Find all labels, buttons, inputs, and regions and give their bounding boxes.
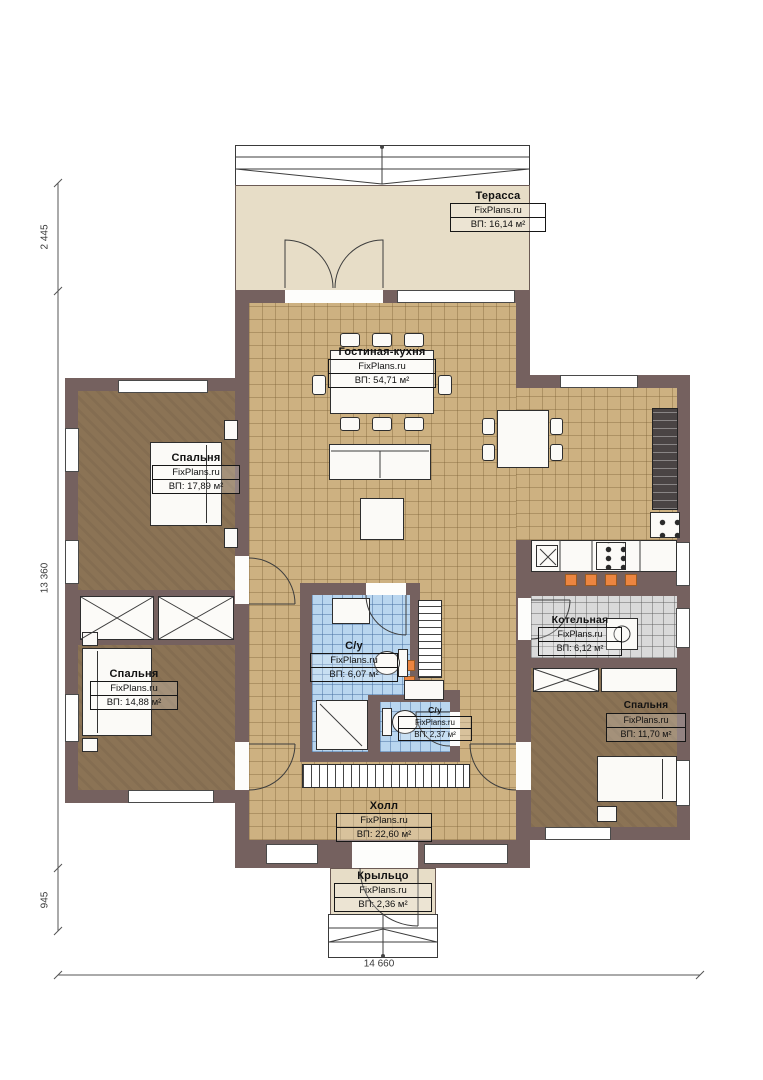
stove: [596, 542, 626, 570]
kitchen-chair: [550, 444, 563, 461]
room-label-hall: Холл FixPlans.ru ВП: 22,60 м²: [336, 800, 432, 842]
room-label-bathroom2: С/у FixPlans.ru ВП: 2,37 м²: [398, 706, 472, 741]
room-area: ВП: 54,71 м²: [329, 374, 435, 387]
kitchen-chair: [482, 444, 495, 461]
brand-text: FixPlans.ru: [607, 714, 685, 728]
toilet-tank: [382, 708, 392, 736]
brand-text: FixPlans.ru: [311, 654, 397, 668]
room-area: ВП: 6,07 м²: [311, 668, 397, 681]
brand-text: FixPlans.ru: [329, 360, 435, 374]
window-hall-bottom-right: [424, 844, 508, 864]
room-info-box: FixPlans.ru ВП: 2,37 м²: [398, 716, 472, 741]
dining-chair: [372, 333, 392, 347]
room-area: ВП: 14,88 м²: [91, 696, 177, 709]
room-info-box: FixPlans.ru ВП: 2,36 м²: [334, 883, 432, 912]
room-name: Гостиная-кухня: [328, 346, 436, 358]
room-label-bedroom1: Спальня FixPlans.ru ВП: 17,89 м²: [152, 452, 240, 494]
hanger-wardrobe: [302, 764, 470, 788]
nightstand: [224, 420, 238, 440]
room-area: ВП: 16,14 м²: [451, 218, 545, 231]
room-info-box: FixPlans.ru ВП: 6,12 м²: [538, 627, 622, 656]
window-bedroom2-bottom: [128, 790, 214, 803]
room-name: Спальня: [90, 668, 178, 680]
room-area: ВП: 2,36 м²: [335, 898, 431, 911]
room-name: С/у: [398, 706, 472, 715]
vent-marker: [625, 574, 637, 586]
kitchen-chair: [550, 418, 563, 435]
bedroom3-door-opening: [516, 742, 531, 790]
vent-marker: [585, 574, 597, 586]
window-bedroom2-left: [65, 694, 79, 742]
room-label-bathroom1: С/у FixPlans.ru ВП: 6,07 м²: [310, 640, 398, 682]
room-info-box: FixPlans.ru ВП: 11,70 м²: [606, 713, 686, 742]
terrace-door-opening: [285, 290, 383, 303]
brand-text: FixPlans.ru: [91, 682, 177, 696]
room-name: Спальня: [152, 452, 240, 464]
room-name: Крыльцо: [334, 870, 432, 882]
porch-door-opening: [352, 842, 418, 868]
room-area: ВП: 6,12 м²: [539, 642, 621, 655]
dining-chair: [372, 417, 392, 431]
kitchen-sink: [536, 545, 558, 567]
dimension-porch-depth: 945: [40, 892, 51, 909]
window-bedroom1-top: [118, 380, 208, 393]
nightstand: [597, 806, 617, 822]
room-label-bedroom3: Спальня FixPlans.ru ВП: 11,70 м²: [606, 700, 686, 742]
window-kitchen-right: [676, 542, 690, 586]
room-name: Котельная: [538, 614, 622, 626]
bathroom1-door-opening: [366, 583, 406, 595]
room-info-box: FixPlans.ru ВП: 54,71 м²: [328, 359, 436, 388]
window-kitchen-top: [560, 375, 638, 388]
tall-cabinet: [652, 408, 678, 510]
dining-chair: [438, 375, 452, 395]
dimension-house-width: 14 660: [364, 959, 395, 970]
dining-chair: [404, 333, 424, 347]
window-bedroom1-left: [65, 428, 79, 472]
room-info-box: FixPlans.ru ВП: 17,89 м²: [152, 465, 240, 494]
window-living-top: [397, 290, 515, 303]
window-bedroom3-right: [676, 760, 690, 806]
dining-chair: [340, 417, 360, 431]
room-label-boiler: Котельная FixPlans.ru ВП: 6,12 м²: [538, 614, 622, 656]
bed-bedroom3: [597, 756, 677, 802]
sofa: [329, 444, 431, 480]
dimension-house-height: 13 360: [40, 563, 51, 594]
window-boiler-right: [676, 608, 690, 648]
room-area: ВП: 11,70 м²: [607, 728, 685, 741]
wardrobe: [158, 596, 234, 640]
terrace-roof-canopy: [235, 145, 530, 186]
window-bedroom3-bottom: [545, 827, 611, 840]
porch-roof-canopy: [328, 914, 438, 958]
room-area: ВП: 22,60 м²: [337, 828, 431, 841]
brand-text: FixPlans.ru: [337, 814, 431, 828]
nightstand: [224, 528, 238, 548]
dining-chair: [312, 375, 326, 395]
wardrobe: [533, 668, 599, 692]
sink: [332, 598, 370, 624]
brand-text: FixPlans.ru: [399, 717, 471, 729]
vent-marker: [565, 574, 577, 586]
shower: [316, 700, 368, 750]
nightstand: [82, 738, 98, 752]
room-area: ВП: 2,37 м²: [399, 729, 471, 740]
room-info-box: FixPlans.ru ВП: 16,14 м²: [450, 203, 546, 232]
cupboard: [601, 668, 677, 692]
vent-marker: [605, 574, 617, 586]
hanger-wardrobe: [418, 600, 442, 678]
fridge: [650, 512, 680, 538]
bed-pillow-line: [662, 759, 674, 799]
sink: [404, 680, 444, 700]
bedroom1-door-opening: [235, 556, 249, 604]
coffee-table: [360, 498, 404, 540]
room-name: Спальня: [606, 700, 686, 712]
dining-chair: [340, 333, 360, 347]
boiler-door-opening: [518, 598, 531, 640]
bedroom2-door-opening: [235, 742, 249, 790]
room-label-porch: Крыльцо FixPlans.ru ВП: 2,36 м²: [334, 870, 432, 912]
room-info-box: FixPlans.ru ВП: 14,88 м²: [90, 681, 178, 710]
room-info-box: FixPlans.ru ВП: 22,60 м²: [336, 813, 432, 842]
dimension-terrace-depth: 2 445: [40, 224, 51, 249]
room-area: ВП: 17,89 м²: [153, 480, 239, 493]
room-label-terrace: Терасса FixPlans.ru ВП: 16,14 м²: [450, 190, 546, 232]
room-name: Терасса: [450, 190, 546, 202]
room-label-living-kitchen: Гостиная-кухня FixPlans.ru ВП: 54,71 м²: [328, 346, 436, 388]
brand-text: FixPlans.ru: [451, 204, 545, 218]
window-hall-bottom-left: [266, 844, 318, 864]
room-name: Холл: [336, 800, 432, 812]
brand-text: FixPlans.ru: [335, 884, 431, 898]
room-label-bedroom2: Спальня FixPlans.ru ВП: 14,88 м²: [90, 668, 178, 710]
room-info-box: FixPlans.ru ВП: 6,07 м²: [310, 653, 398, 682]
room-name: С/у: [310, 640, 398, 652]
window-bedroom1-left-2: [65, 540, 79, 584]
floor-plan-canvas: 2 445 13 360 945 14 660 Терасса FixPlans…: [0, 0, 763, 1080]
brand-text: FixPlans.ru: [539, 628, 621, 642]
dining-chair: [404, 417, 424, 431]
brand-text: FixPlans.ru: [153, 466, 239, 480]
kitchen-chair: [482, 418, 495, 435]
nightstand: [82, 632, 98, 646]
kitchen-table: [497, 410, 549, 468]
